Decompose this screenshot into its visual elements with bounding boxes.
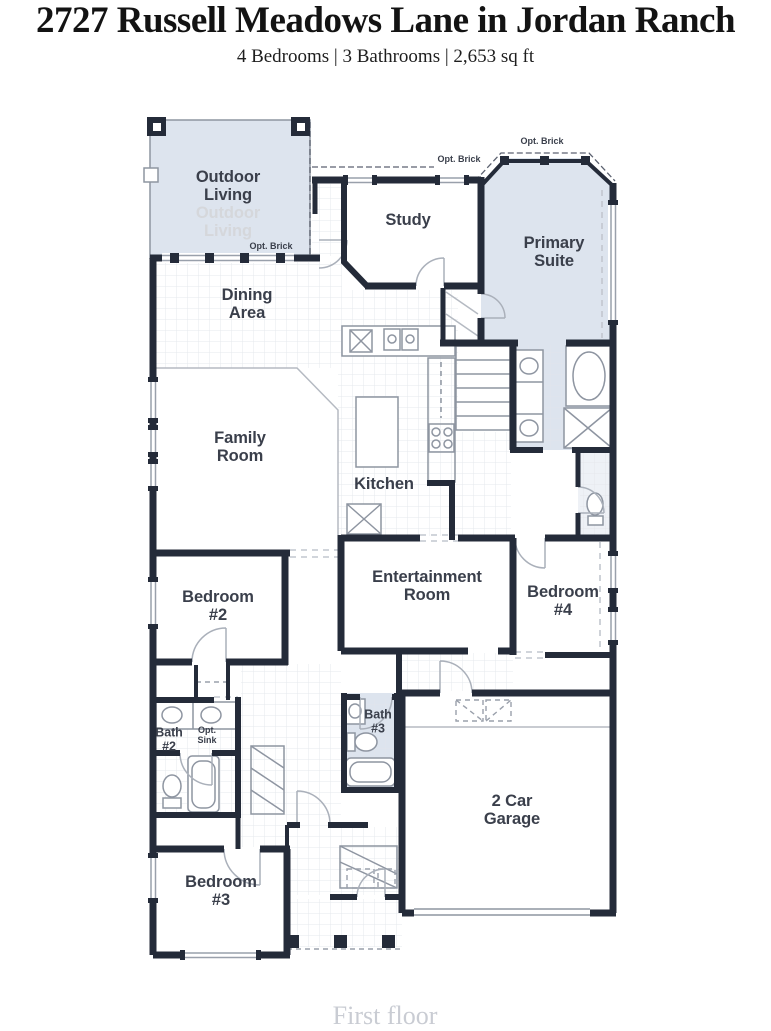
annotation-opt-sink: Opt. Sink [197, 726, 216, 746]
annotation-opt-brick-study: Opt. Brick [437, 155, 480, 165]
listing-header: 2727 Russell Meadows Lane in Jordan Ranc… [0, 0, 771, 68]
caption-first-floor: First floor [333, 1001, 438, 1031]
room-label-study: Study [385, 211, 430, 229]
room-label-kitchen: Kitchen [354, 475, 414, 493]
room-label-entertainment-room: Entertainment Room [372, 568, 482, 604]
room-label-bedroom-4: Bedroom #4 [527, 583, 599, 619]
page: 2727 Russell Meadows Lane in Jordan Ranc… [0, 0, 771, 1024]
floor-plan-drawing [0, 0, 771, 1024]
room-label-family-room: Family Room [214, 429, 266, 465]
annotation-opt-brick-bay: Opt. Brick [520, 137, 563, 147]
annotation-opt-brick-porch: Opt. Brick [249, 242, 292, 252]
room-label-garage: 2 Car Garage [484, 792, 540, 828]
room-label-outdoor-living-ghost: Outdoor Living [196, 204, 260, 240]
page-title: 2727 Russell Meadows Lane in Jordan Ranc… [0, 0, 771, 43]
room-label-bedroom-2: Bedroom #2 [182, 588, 254, 624]
page-subtitle: 4 Bedrooms | 3 Bathrooms | 2,653 sq ft [0, 46, 771, 68]
room-label-bath-3: Bath #3 [364, 708, 391, 736]
room-label-dining-area: Dining Area [222, 286, 273, 322]
room-label-bath-2: Bath #2 [155, 726, 182, 754]
room-label-primary-suite: Primary Suite [524, 234, 585, 270]
room-label-bedroom-3: Bedroom #3 [185, 873, 257, 909]
room-label-outdoor-living: Outdoor Living [196, 168, 260, 204]
floor-plan: Outdoor Living Outdoor Living Opt. Brick… [0, 0, 771, 1024]
